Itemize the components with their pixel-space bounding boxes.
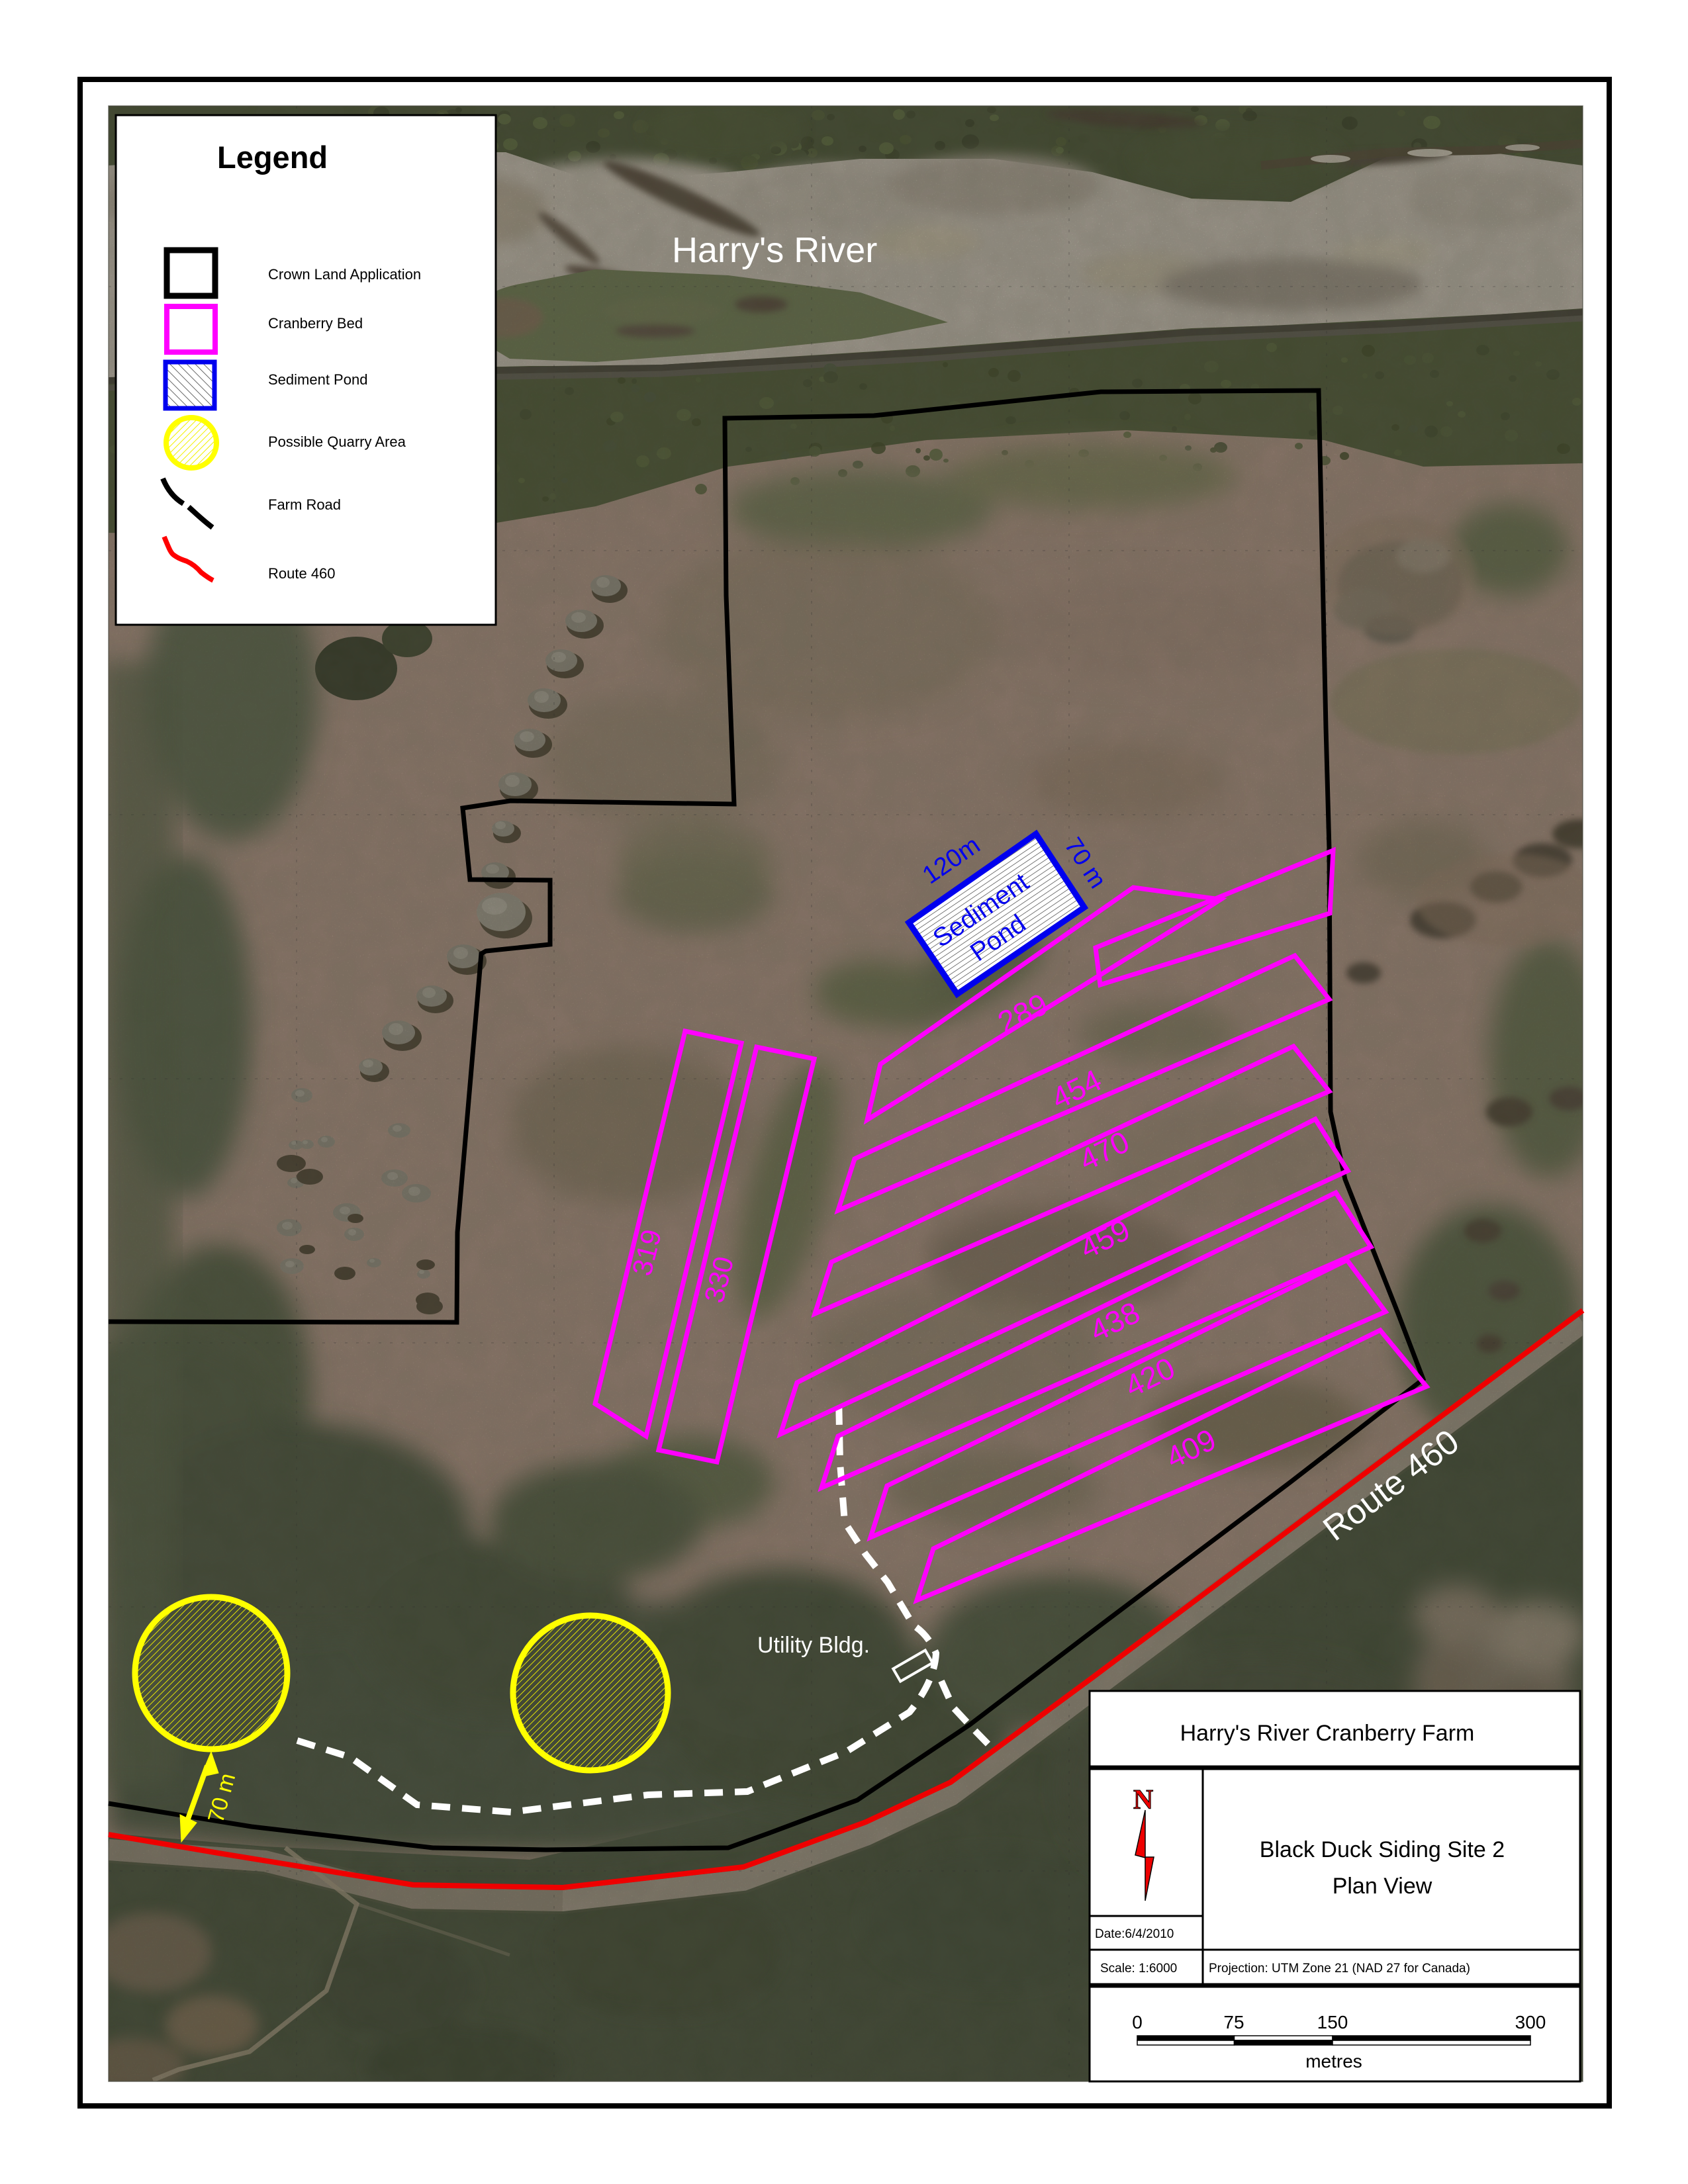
svg-text:Black Duck Siding Site 2: Black Duck Siding Site 2 [1260,1837,1505,1862]
svg-text:Harry's River Cranberry Farm: Harry's River Cranberry Farm [1180,1721,1475,1746]
svg-text:Projection: UTM Zone 21 (NAD 2: Projection: UTM Zone 21 (NAD 27 for Cana… [1209,1962,1470,1976]
svg-text:300: 300 [1515,2012,1546,2032]
svg-text:75: 75 [1223,2012,1244,2032]
svg-text:metres: metres [1305,2051,1362,2071]
svg-text:Plan View: Plan View [1333,1874,1432,1899]
svg-text:Sediment Pond: Sediment Pond [268,371,367,388]
svg-text:0: 0 [1132,2012,1143,2032]
svg-text:Utility Bldg.: Utility Bldg. [757,1633,870,1658]
svg-text:Date:6/4/2010: Date:6/4/2010 [1095,1927,1174,1941]
svg-text:Route 460: Route 460 [268,565,336,582]
svg-text:Possible Quarry Area: Possible Quarry Area [268,433,406,450]
svg-text:N: N [1133,1785,1153,1815]
svg-text:Crown Land Application: Crown Land Application [268,266,421,283]
svg-text:Harry's River: Harry's River [672,230,877,270]
svg-text:150: 150 [1317,2012,1348,2032]
svg-text:Legend: Legend [217,140,328,175]
svg-text:Cranberry Bed: Cranberry Bed [268,315,363,332]
svg-text:Scale: 1:6000: Scale: 1:6000 [1100,1962,1177,1976]
svg-text:Farm Road: Farm Road [268,496,341,513]
